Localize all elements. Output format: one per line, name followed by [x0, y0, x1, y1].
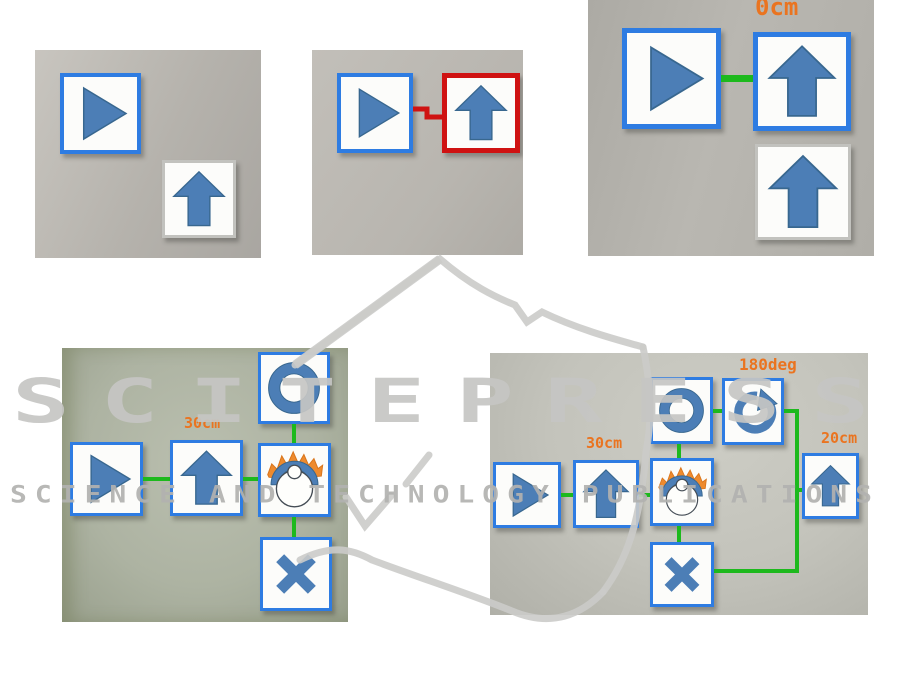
distance-label: 30cm: [184, 414, 220, 432]
green-connector: [292, 517, 296, 537]
panel-1-photo: [35, 50, 261, 258]
move-forward-card-error: [442, 73, 520, 153]
play-icon: [73, 445, 140, 513]
green-connector: [795, 488, 802, 492]
panel-3-photo: 0cm: [588, 0, 874, 256]
turn-card: [722, 378, 784, 445]
move-forward-card-2: [802, 453, 859, 519]
collision-sensor-card: [258, 443, 331, 517]
green-connector: [677, 526, 681, 542]
start-card: [493, 462, 561, 528]
paper-figure: 0cm 30cm: [0, 0, 901, 682]
green-connector: [721, 75, 753, 82]
error-connector: [413, 105, 442, 121]
up-arrow-icon: [173, 443, 240, 513]
play-icon: [496, 465, 558, 525]
up-arrow-icon: [805, 456, 856, 516]
start-card: [70, 442, 143, 516]
loop-card: [650, 377, 713, 444]
green-connector: [292, 424, 296, 443]
move-forward-card: [573, 460, 639, 528]
move-forward-card: [162, 160, 236, 238]
stop-card: [650, 542, 714, 607]
green-connector: [561, 493, 573, 497]
green-connector: [143, 477, 170, 481]
start-card: [622, 28, 721, 129]
ring-icon: [261, 355, 327, 421]
green-connector: [243, 477, 258, 481]
distance-label-2: 20cm: [821, 429, 857, 447]
start-card: [337, 73, 413, 153]
up-arrow-icon: [576, 463, 636, 525]
up-arrow-icon: [758, 147, 848, 237]
loop-card: [258, 352, 330, 424]
start-card: [60, 73, 141, 154]
collision-sensor-card: [650, 458, 714, 526]
stop-card: [260, 537, 332, 611]
x-icon: [263, 540, 329, 608]
panel-5-photo: 180deg 30cm 20cm: [490, 353, 868, 615]
ring-icon: [653, 380, 710, 441]
up-arrow-icon: [165, 163, 233, 235]
green-connector: [714, 569, 799, 573]
x-icon: [653, 545, 711, 604]
distance-label: 30cm: [586, 434, 622, 452]
collision-sensor-icon: [653, 461, 711, 523]
up-arrow-icon: [758, 37, 846, 126]
green-connector: [713, 409, 722, 413]
panel-4-photo: 30cm: [62, 348, 348, 622]
play-icon: [627, 33, 716, 124]
play-icon: [341, 77, 409, 149]
rotate-arrow-icon: [725, 381, 781, 442]
move-forward-card-unrecognized: [755, 144, 851, 240]
green-connector: [639, 493, 650, 497]
up-arrow-icon: [447, 78, 515, 148]
green-connector: [677, 444, 681, 458]
angle-label: 180deg: [739, 355, 797, 374]
panel-2-photo: [312, 50, 523, 255]
move-forward-card: [753, 32, 851, 131]
play-icon: [64, 77, 137, 150]
collision-sensor-icon: [261, 446, 328, 514]
move-forward-card: [170, 440, 243, 516]
distance-label: 0cm: [755, 0, 798, 21]
